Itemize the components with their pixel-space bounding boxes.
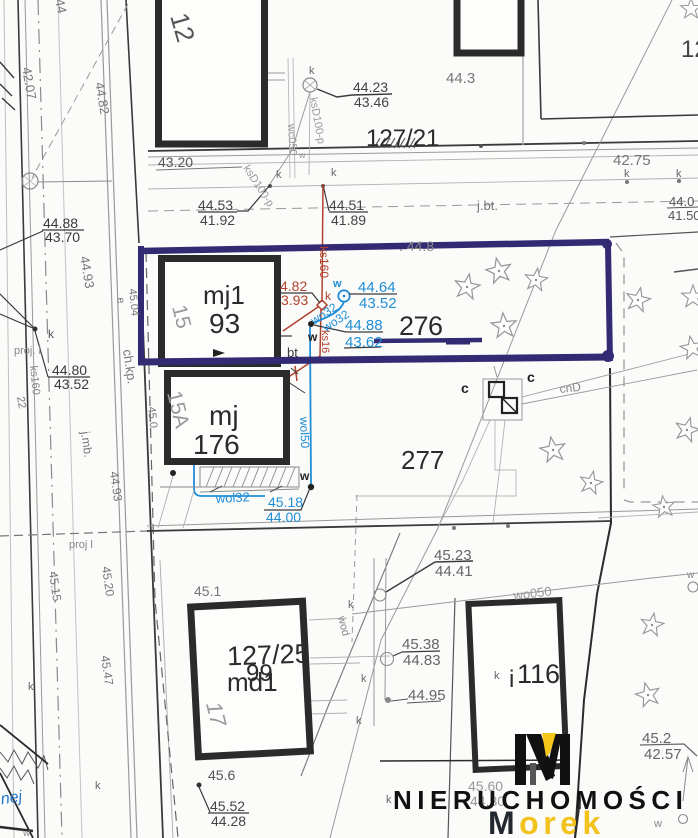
svg-text:c: c	[461, 380, 469, 396]
svg-text:44.0: 44.0	[669, 194, 694, 209]
svg-text:44.00: 44.00	[266, 509, 301, 525]
svg-text:md1: md1	[227, 667, 278, 697]
svg-text:Morek: Morek	[488, 805, 605, 838]
svg-text:w: w	[307, 330, 318, 344]
svg-text:w: w	[299, 469, 310, 483]
svg-text:45.0: 45.0	[145, 406, 159, 429]
svg-text:k: k	[276, 169, 282, 181]
svg-text:45.23: 45.23	[434, 547, 472, 564]
svg-text:45.1: 45.1	[194, 583, 221, 599]
svg-text:43.20: 43.20	[158, 154, 193, 170]
svg-text:k: k	[676, 168, 682, 180]
svg-text:k: k	[331, 167, 337, 179]
svg-text:k: k	[95, 780, 101, 792]
svg-text:k: k	[309, 65, 315, 77]
svg-text:w: w	[332, 278, 342, 290]
svg-text:k: k	[28, 681, 34, 693]
svg-text:. 44.8: . 44.8	[399, 238, 434, 254]
svg-text:proj. l: proj. l	[14, 345, 41, 357]
svg-text:42.57: 42.57	[644, 746, 682, 763]
svg-text:93: 93	[209, 308, 240, 339]
svg-text:41.50: 41.50	[668, 208, 698, 223]
svg-text:w: w	[686, 570, 695, 581]
svg-text:43.70: 43.70	[45, 229, 80, 245]
svg-text:k: k	[348, 599, 354, 611]
svg-text:22: 22	[14, 395, 28, 409]
svg-text:44.95: 44.95	[408, 687, 446, 704]
svg-text:44.51: 44.51	[329, 197, 364, 213]
svg-text:176: 176	[193, 429, 240, 460]
svg-text:43.52: 43.52	[359, 295, 397, 312]
svg-text:44.23: 44.23	[353, 79, 388, 95]
svg-text:45.52: 45.52	[210, 798, 245, 814]
svg-text:3.93: 3.93	[281, 292, 308, 308]
svg-text:41.92: 41.92	[200, 212, 235, 228]
svg-text:12: 12	[681, 36, 698, 63]
svg-text:44.53: 44.53	[198, 197, 233, 213]
svg-text:wol50: wol50	[297, 416, 312, 449]
svg-text:mj1: mj1	[203, 280, 245, 310]
svg-text:cnD: cnD	[559, 380, 582, 396]
svg-text:j.bt.: j.bt.	[476, 198, 498, 213]
svg-text:44.28: 44.28	[211, 813, 246, 829]
svg-text:116: 116	[517, 659, 560, 689]
svg-text:c: c	[527, 369, 535, 385]
svg-text:k: k	[356, 715, 362, 727]
svg-text:w: w	[22, 828, 31, 838]
svg-text:44.41: 44.41	[435, 563, 473, 580]
svg-text:w: w	[298, 150, 306, 160]
svg-text:i: i	[509, 666, 514, 693]
svg-text:ks160: ks160	[317, 246, 331, 278]
svg-text:k: k	[361, 673, 367, 685]
svg-text:43.62: 43.62	[345, 334, 383, 351]
svg-text:45.38: 45.38	[402, 636, 440, 653]
svg-text:wc050: wc050	[285, 123, 299, 156]
svg-text:44.64: 44.64	[358, 279, 396, 296]
svg-text:43.46: 43.46	[354, 94, 389, 110]
svg-text:277: 277	[401, 445, 444, 475]
svg-text:w: w	[653, 818, 662, 830]
svg-text:127/21: 127/21	[366, 125, 439, 152]
svg-text:nej: nej	[0, 788, 24, 808]
svg-text:44.3: 44.3	[446, 70, 475, 87]
svg-text:45.18: 45.18	[268, 494, 303, 510]
svg-text:44.83: 44.83	[403, 652, 441, 669]
svg-text:bt: bt	[287, 345, 298, 360]
svg-text:43.52: 43.52	[54, 376, 89, 392]
svg-text:276: 276	[399, 311, 443, 341]
svg-text:wol32: wol32	[214, 489, 250, 506]
svg-text:k: k	[494, 670, 500, 682]
svg-text:45.6: 45.6	[208, 767, 235, 783]
svg-text:k: k	[624, 168, 630, 180]
svg-text:proj l: proj l	[69, 539, 93, 551]
svg-text:45.2: 45.2	[642, 730, 671, 747]
svg-text:41.89: 41.89	[331, 212, 366, 228]
svg-text:k: k	[386, 794, 392, 806]
svg-text:mj: mj	[209, 400, 239, 431]
svg-text:42.75: 42.75	[613, 152, 651, 169]
svg-text:k: k	[48, 327, 55, 341]
